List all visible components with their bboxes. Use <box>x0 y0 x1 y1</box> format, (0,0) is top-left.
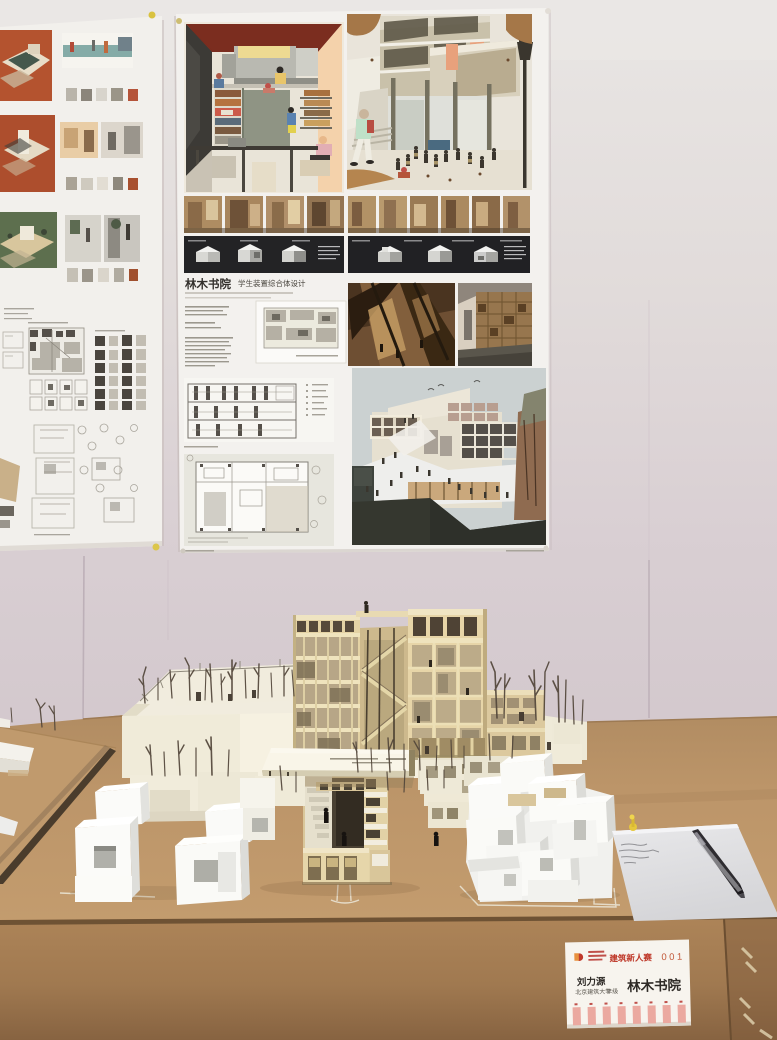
svg-text:刘力源: 刘力源 <box>577 976 606 989</box>
svg-text:学生装置综合体设计: 学生装置综合体设计 <box>238 278 306 288</box>
svg-text:001: 001 <box>661 952 685 964</box>
svg-text:林木书院: 林木书院 <box>627 977 682 994</box>
svg-text:林木书院: 林木书院 <box>185 277 231 291</box>
svg-text:建筑新人赛: 建筑新人赛 <box>608 952 652 963</box>
